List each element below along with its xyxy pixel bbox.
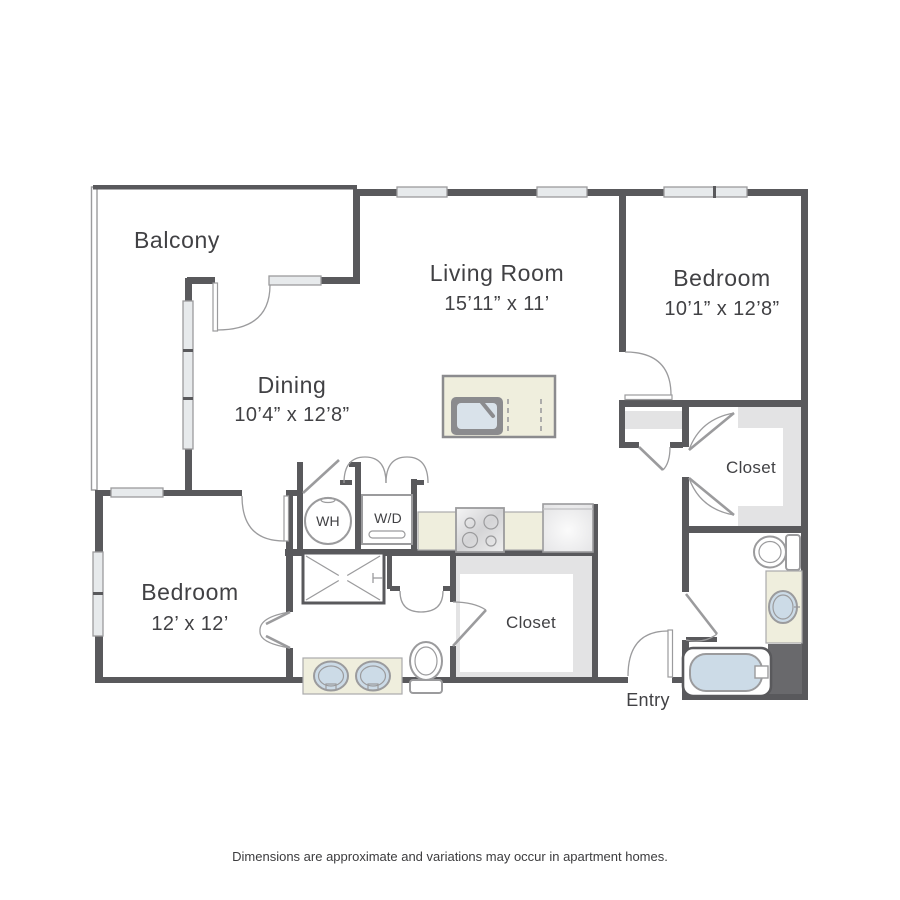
bedroom-left-label: Bedroom [141, 579, 239, 605]
dining-label: Dining [258, 372, 327, 398]
linen-closet-door [639, 447, 663, 470]
bedroom-right-dims: 10’1” x 12’8” [664, 298, 779, 320]
wc-door-right [421, 591, 443, 612]
water-heater-door [303, 460, 339, 493]
closet-middle-label: Closet [506, 613, 556, 632]
living-room-label: Living Room [430, 260, 564, 286]
dining-dims: 10’4” x 12’8” [234, 404, 349, 426]
closet-right-label: Closet [726, 458, 776, 477]
kitchen-island [443, 376, 555, 437]
closet-right-door-bottom [689, 478, 734, 515]
bedroom-right-door [625, 395, 672, 400]
main-bath-door [686, 594, 717, 634]
plumbing-chase [768, 644, 802, 694]
wd-bifold-right [386, 457, 428, 483]
entry-door [668, 630, 673, 677]
floorplan-drawing: Balcony Living Room 15’11” x 11’ Bedroom… [0, 0, 900, 900]
bedroom-left-dims: 12’ x 12’ [151, 613, 228, 635]
disclaimer-text: Dimensions are approximate and variation… [232, 849, 668, 864]
stove [456, 508, 504, 552]
bathtub [683, 648, 771, 696]
wd-bifold-left [344, 457, 386, 483]
washer-dryer-label: W/D [374, 510, 402, 526]
living-room-dims: 15’11” x 11’ [444, 293, 549, 315]
balcony-door [213, 283, 218, 331]
entry-label: Entry [626, 690, 670, 710]
toilet-main-bath [754, 535, 800, 570]
bedroom-left-door [284, 496, 289, 541]
wc-door-left [400, 591, 421, 612]
shower [303, 553, 384, 603]
tub-faucet [755, 666, 768, 678]
vanity-single [766, 571, 802, 643]
bedroom-right-label: Bedroom [673, 265, 771, 291]
toilet-bedroom-bath [410, 642, 442, 693]
balcony-railing [92, 187, 98, 490]
refrigerator [543, 504, 593, 552]
water-heater-label: WH [316, 513, 340, 529]
vanity-double [303, 658, 402, 694]
floorplan-page: Balcony Living Room 15’11” x 11’ Bedroom… [0, 0, 900, 900]
closet-right-door-top [689, 413, 734, 450]
balcony-label: Balcony [134, 227, 220, 253]
